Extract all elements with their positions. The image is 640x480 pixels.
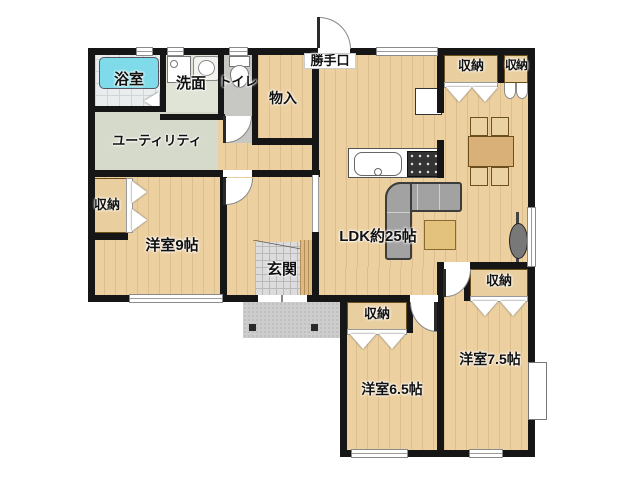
tv xyxy=(509,223,528,259)
room-label-washroom: 洗面 xyxy=(165,76,217,93)
folding-door-icon xyxy=(472,87,498,102)
sofa-arm-vertical xyxy=(385,182,412,260)
entrance-door-tick xyxy=(281,295,283,302)
room-label-entrance: 玄関 xyxy=(258,262,306,279)
porch-post xyxy=(311,324,318,331)
window-bedroom65 xyxy=(352,450,407,457)
window-bedroom75-bottom xyxy=(470,450,502,457)
wall-lower-left xyxy=(340,295,347,457)
bedroom65-door-gap xyxy=(410,295,438,302)
room-label-toilet: トイレ xyxy=(216,75,260,89)
vanity-bowl xyxy=(198,60,215,76)
dining-chair xyxy=(491,167,509,186)
wall-closet9-bottom xyxy=(88,233,128,240)
window-kitchen xyxy=(377,48,437,55)
wall-wash-bottom xyxy=(160,114,225,120)
porch xyxy=(243,302,343,338)
bedroom75-door-gap xyxy=(444,262,470,269)
room-label-ldk: LDK約25帖 xyxy=(330,229,426,246)
wall-bath-bottom xyxy=(88,106,166,112)
folding-door-icon xyxy=(446,87,472,102)
backdoor-panel xyxy=(317,17,320,48)
kitchen-faucet xyxy=(374,168,382,176)
window xyxy=(168,48,183,55)
bedroom75-door-panel xyxy=(443,269,446,297)
room-label-bedroom65: 洋室6.5帖 xyxy=(346,382,438,397)
toilet-door-panel xyxy=(223,116,226,143)
folding-door-icon xyxy=(350,334,376,349)
bedroom65-door-panel xyxy=(434,302,437,331)
closet-label: 収納 xyxy=(503,59,529,72)
dining-chair xyxy=(491,117,509,136)
closet-label: 収納 xyxy=(355,307,399,321)
folding-door-icon xyxy=(472,301,498,316)
room-label-storage: 物入 xyxy=(257,91,309,106)
folding-door-icon xyxy=(500,301,526,316)
closet-label: 収納 xyxy=(449,59,493,73)
folding-door-icon xyxy=(379,334,405,349)
wall-utility-bottom xyxy=(88,170,320,177)
window-bedroom9 xyxy=(130,295,222,302)
wall-storage-bottom xyxy=(252,138,319,145)
bedroom9-door-panel xyxy=(223,178,226,205)
washbasin-sink xyxy=(170,60,178,68)
coffee-table xyxy=(424,220,456,250)
wall-kitchen-stub xyxy=(437,140,444,178)
window xyxy=(137,48,152,55)
room-label-utility: ユーティリティ xyxy=(104,134,210,148)
folding-door-icon xyxy=(132,209,147,231)
dining-chair xyxy=(470,167,488,186)
room-label-backdoor: 勝手口 xyxy=(305,54,355,68)
room-label-bedroom75: 洋室7.5帖 xyxy=(448,352,532,367)
floor-plan: 浴室 洗面 トイレ ユーティリティ 物入 勝手口 収納 洋室9帖 玄関 LDK約… xyxy=(0,0,640,480)
double-door-icon xyxy=(516,83,528,99)
dining-chair xyxy=(470,117,488,136)
room-label-bath: 浴室 xyxy=(100,72,158,89)
closet-label: 収納 xyxy=(84,198,130,212)
backdoor-swing xyxy=(319,17,351,49)
folding-door-icon xyxy=(132,181,147,203)
window xyxy=(230,48,247,55)
wall-kitchen-stub-top xyxy=(437,48,444,113)
closet-label: 収納 xyxy=(477,274,521,288)
dining-table xyxy=(468,136,514,167)
porch-post xyxy=(249,324,256,331)
double-door-icon xyxy=(504,83,516,99)
stove xyxy=(407,151,438,177)
window-ldk xyxy=(528,208,535,266)
bedroom9-door-gap xyxy=(223,170,252,177)
window-bedroom75-side xyxy=(528,362,547,420)
room-label-bedroom9: 洋室9帖 xyxy=(125,238,219,255)
ldk-sliding-door xyxy=(312,175,319,232)
